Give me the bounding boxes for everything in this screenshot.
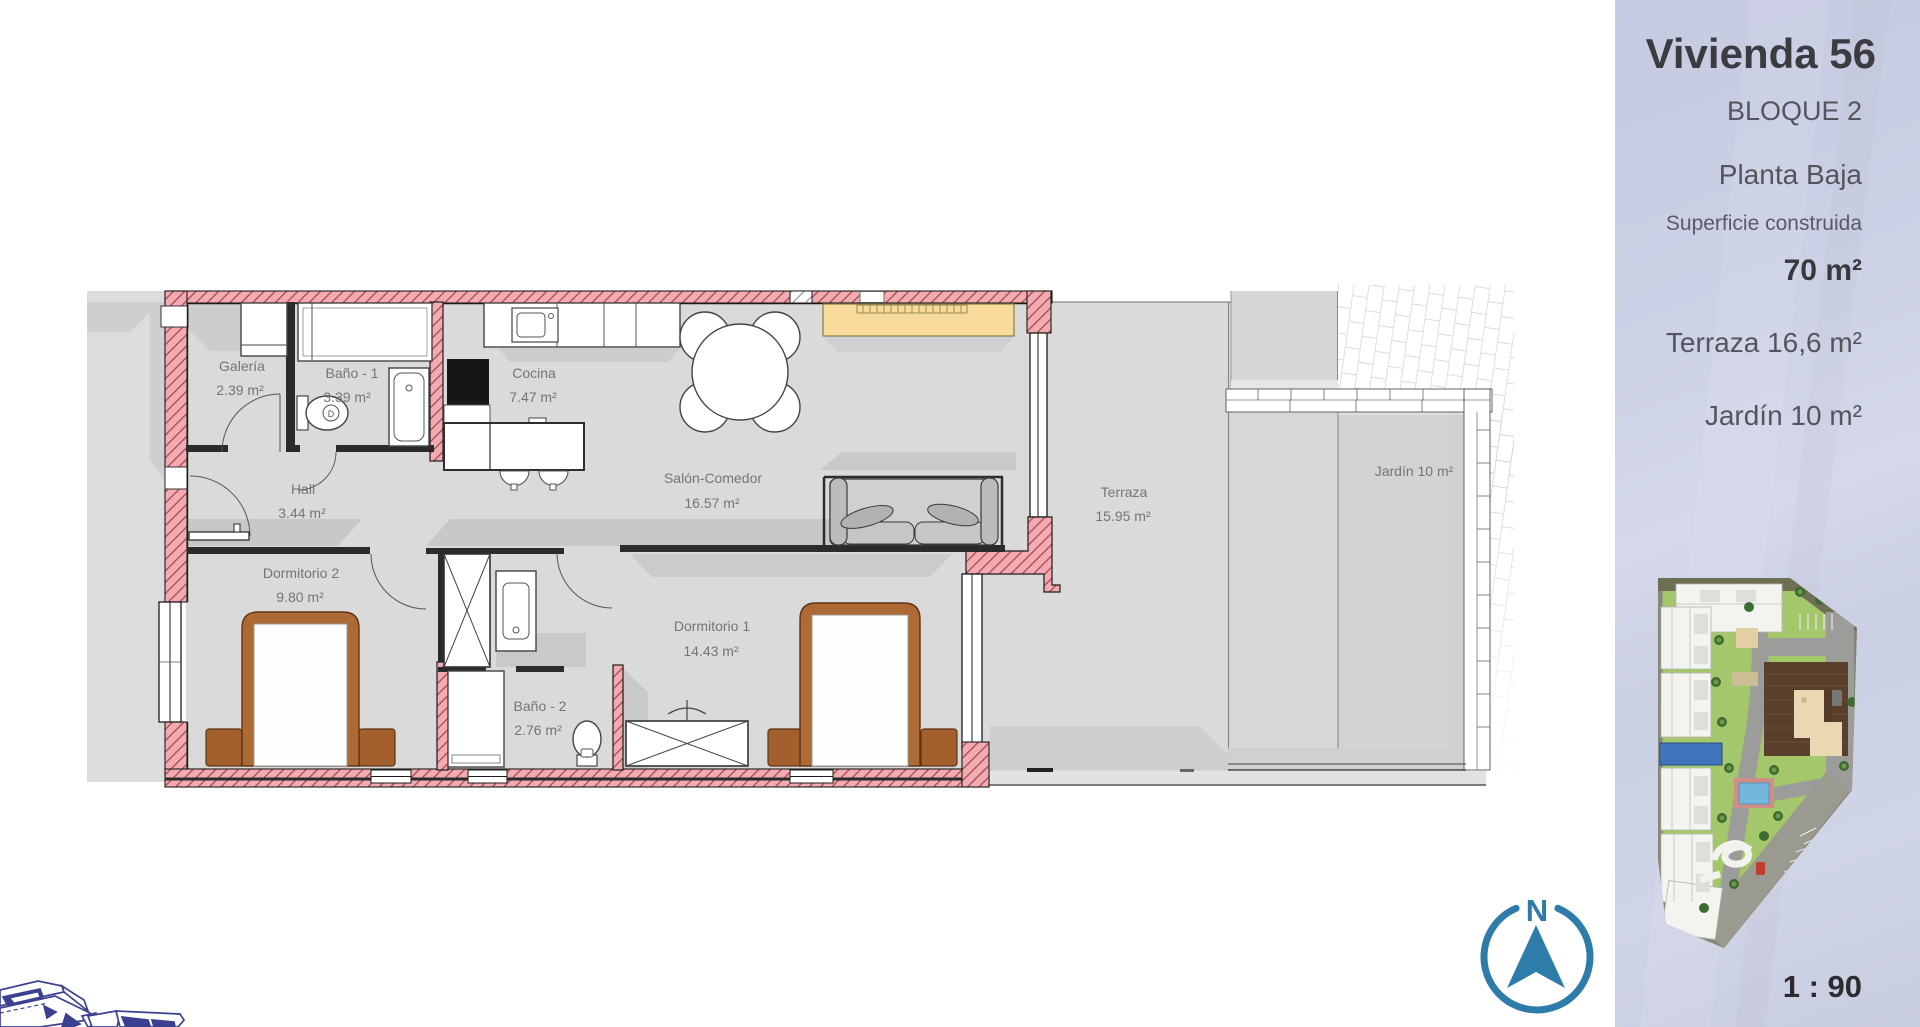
svg-text:Terraza 16,6 m²: Terraza 16,6 m² <box>1666 327 1862 358</box>
svg-text:Jardín 10 m²: Jardín 10 m² <box>1375 463 1454 479</box>
svg-text:Terraza: Terraza <box>1101 484 1148 500</box>
svg-text:Cocina: Cocina <box>512 365 556 381</box>
svg-text:BLOQUE 2: BLOQUE 2 <box>1727 96 1862 126</box>
svg-text:N: N <box>1526 893 1548 928</box>
svg-text:16.57 m²: 16.57 m² <box>684 495 740 511</box>
svg-text:1 : 90: 1 : 90 <box>1783 969 1862 1004</box>
svg-text:14.43 m²: 14.43 m² <box>683 643 739 659</box>
svg-text:Hall: Hall <box>291 481 315 497</box>
svg-text:Vivienda 56: Vivienda 56 <box>1646 30 1876 77</box>
svg-text:7.47 m²: 7.47 m² <box>509 389 557 405</box>
svg-text:Galería: Galería <box>219 358 265 374</box>
svg-text:2.39 m²: 2.39 m² <box>216 382 264 398</box>
svg-text:2.76 m²: 2.76 m² <box>514 722 562 738</box>
svg-text:Baño - 1: Baño - 1 <box>326 365 379 381</box>
svg-text:Superficie construida: Superficie construida <box>1666 212 1862 235</box>
svg-text:Planta Baja: Planta Baja <box>1719 159 1863 190</box>
svg-text:70 m²: 70 m² <box>1784 254 1862 287</box>
svg-text:Baño - 2: Baño - 2 <box>514 698 567 714</box>
svg-text:3.44 m²: 3.44 m² <box>278 505 326 521</box>
svg-text:15.95 m²: 15.95 m² <box>1095 508 1151 524</box>
svg-text:3.39 m²: 3.39 m² <box>323 389 371 405</box>
svg-text:9.80 m²: 9.80 m² <box>276 589 324 605</box>
svg-text:Dormitorio 1: Dormitorio 1 <box>674 618 750 634</box>
svg-text:Salón-Comedor: Salón-Comedor <box>664 470 762 486</box>
svg-text:D: D <box>328 409 335 419</box>
svg-text:Jardín 10 m²: Jardín 10 m² <box>1705 400 1862 431</box>
svg-text:Dormitorio 2: Dormitorio 2 <box>263 565 339 581</box>
